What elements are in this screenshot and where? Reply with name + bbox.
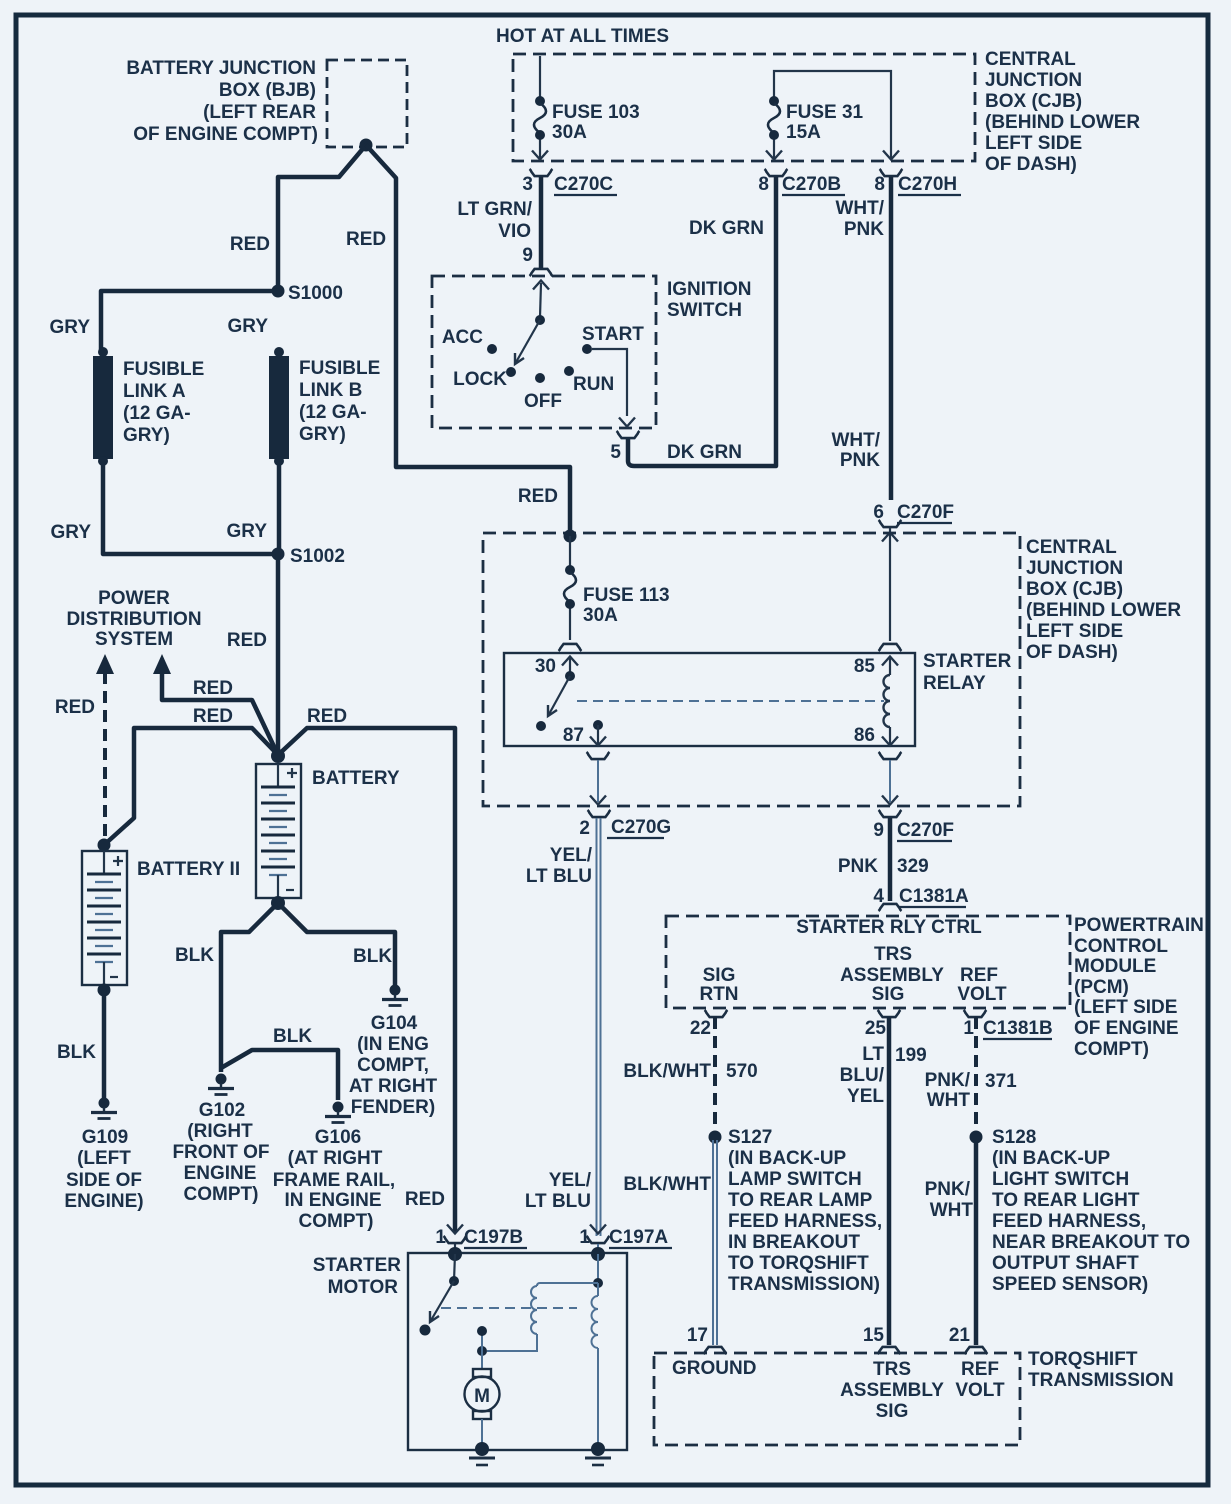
svg-text:(BEHIND LOWER: (BEHIND LOWER — [985, 112, 1140, 133]
svg-text:570: 570 — [726, 1061, 758, 1082]
svg-text:199: 199 — [895, 1045, 927, 1066]
svg-text:BOX (BJB): BOX (BJB) — [219, 80, 316, 101]
svg-text:POWERTRAIN: POWERTRAIN — [1074, 915, 1204, 936]
svg-text:17: 17 — [687, 1325, 708, 1346]
svg-text:SIG: SIG — [703, 965, 736, 986]
svg-text:LT BLU: LT BLU — [526, 866, 592, 887]
svg-text:8: 8 — [874, 174, 885, 195]
svg-text:GROUND: GROUND — [672, 1358, 756, 1379]
svg-text:AT RIGHT: AT RIGHT — [349, 1076, 438, 1097]
svg-text:S127: S127 — [728, 1127, 772, 1148]
svg-text:(IN BACK-UP: (IN BACK-UP — [728, 1148, 847, 1169]
svg-text:TO REAR LAMP: TO REAR LAMP — [728, 1190, 873, 1211]
svg-text:BATTERY JUNCTION: BATTERY JUNCTION — [126, 58, 316, 79]
svg-text:C270G: C270G — [611, 817, 671, 838]
svg-text:TRANSMISSION): TRANSMISSION) — [728, 1274, 880, 1295]
svg-text:ENGINE): ENGINE) — [64, 1191, 143, 1212]
svg-text:G106: G106 — [315, 1127, 361, 1148]
svg-text:21: 21 — [949, 1325, 971, 1346]
svg-text:(LEFT REAR: (LEFT REAR — [203, 102, 316, 123]
svg-text:IGNITION: IGNITION — [667, 279, 751, 300]
svg-text:POWER: POWER — [98, 588, 170, 609]
svg-text:STARTER RLY CTRL: STARTER RLY CTRL — [796, 917, 982, 938]
svg-text:YEL/: YEL/ — [549, 1170, 592, 1191]
svg-text:G102: G102 — [199, 1100, 245, 1121]
svg-text:C270F: C270F — [897, 502, 954, 523]
svg-text:OF ENGINE COMPT): OF ENGINE COMPT) — [133, 124, 318, 145]
svg-text:VOLT: VOLT — [955, 1380, 1005, 1401]
svg-text:30A: 30A — [583, 605, 618, 626]
svg-text:SIDE OF: SIDE OF — [66, 1170, 142, 1191]
svg-text:9: 9 — [873, 820, 884, 841]
svg-text:GRY): GRY) — [299, 424, 346, 445]
svg-text:TORQSHIFT: TORQSHIFT — [1028, 1349, 1138, 1370]
svg-text:C197B: C197B — [464, 1227, 523, 1248]
svg-text:FUSE 113: FUSE 113 — [583, 585, 670, 606]
svg-text:FEED HARNESS,: FEED HARNESS, — [992, 1211, 1146, 1232]
svg-text:30A: 30A — [552, 122, 587, 143]
svg-text:22: 22 — [690, 1018, 711, 1039]
svg-text:2: 2 — [579, 818, 590, 839]
svg-text:FUSE 103: FUSE 103 — [552, 102, 640, 123]
svg-text:DK GRN: DK GRN — [689, 218, 764, 239]
svg-text:LT BLU: LT BLU — [525, 1191, 591, 1212]
svg-text:1: 1 — [963, 1018, 974, 1039]
svg-text:OF DASH): OF DASH) — [1026, 642, 1118, 663]
svg-text:(12 GA-: (12 GA- — [299, 402, 367, 423]
svg-text:WHT: WHT — [930, 1200, 974, 1221]
svg-text:SYSTEM: SYSTEM — [95, 629, 173, 650]
svg-text:LIGHT SWITCH: LIGHT SWITCH — [992, 1169, 1129, 1190]
svg-text:(AT RIGHT: (AT RIGHT — [288, 1148, 383, 1169]
svg-text:JUNCTION: JUNCTION — [985, 70, 1082, 91]
svg-text:TRS: TRS — [874, 944, 912, 965]
svg-text:BLK/WHT: BLK/WHT — [623, 1174, 711, 1195]
svg-text:S128: S128 — [992, 1127, 1036, 1148]
svg-text:(RIGHT: (RIGHT — [187, 1121, 253, 1142]
svg-text:WHT/: WHT/ — [835, 198, 884, 219]
svg-text:PNK: PNK — [840, 450, 880, 471]
svg-text:YEL: YEL — [847, 1086, 884, 1107]
svg-text:ASSEMBLY: ASSEMBLY — [840, 1380, 944, 1401]
svg-text:GRY: GRY — [50, 317, 91, 338]
svg-text:(12 GA-: (12 GA- — [123, 403, 191, 424]
svg-text:IN BREAKOUT: IN BREAKOUT — [728, 1232, 860, 1253]
svg-text:STARTER: STARTER — [313, 1255, 402, 1276]
svg-text:TRANSMISSION: TRANSMISSION — [1028, 1370, 1174, 1391]
svg-text:BLK: BLK — [57, 1042, 96, 1063]
svg-text:WHT: WHT — [927, 1090, 971, 1111]
svg-text:VOLT: VOLT — [957, 984, 1007, 1005]
svg-text:OF DASH): OF DASH) — [985, 154, 1077, 175]
svg-text:ASSEMBLY: ASSEMBLY — [840, 965, 944, 986]
svg-text:RTN: RTN — [699, 984, 738, 1005]
svg-text:(PCM): (PCM) — [1074, 977, 1129, 998]
svg-text:BLK: BLK — [353, 946, 392, 967]
svg-text:GRY): GRY) — [123, 425, 170, 446]
svg-text:PNK: PNK — [844, 219, 884, 240]
svg-text:SWITCH: SWITCH — [667, 300, 742, 321]
svg-text:START: START — [582, 324, 644, 345]
svg-text:C197A: C197A — [609, 1227, 668, 1248]
svg-text:RED: RED — [346, 229, 386, 250]
svg-text:15A: 15A — [786, 122, 821, 143]
svg-text:(IN ENG: (IN ENG — [357, 1034, 429, 1055]
svg-text:COMPT): COMPT) — [1074, 1039, 1149, 1060]
svg-text:85: 85 — [854, 656, 876, 677]
svg-text:LINK A: LINK A — [123, 381, 186, 402]
svg-text:NEAR BREAKOUT TO: NEAR BREAKOUT TO — [992, 1232, 1190, 1253]
svg-text:OF ENGINE: OF ENGINE — [1074, 1018, 1179, 1039]
svg-text:ACC: ACC — [442, 327, 483, 348]
svg-text:PNK/: PNK/ — [925, 1179, 971, 1200]
svg-text:RED: RED — [405, 1189, 445, 1210]
svg-text:DISTRIBUTION: DISTRIBUTION — [66, 609, 201, 630]
svg-text:S1002: S1002 — [290, 546, 345, 567]
svg-text:SPEED SENSOR): SPEED SENSOR) — [992, 1274, 1148, 1295]
svg-text:(IN BACK-UP: (IN BACK-UP — [992, 1148, 1111, 1169]
svg-text:HOT AT ALL TIMES: HOT AT ALL TIMES — [496, 26, 669, 47]
svg-text:C1381A: C1381A — [899, 886, 969, 907]
svg-text:MODULE: MODULE — [1074, 956, 1156, 977]
svg-text:STARTER: STARTER — [923, 651, 1012, 672]
svg-text:COMPT): COMPT) — [184, 1184, 259, 1205]
svg-text:GRY: GRY — [228, 316, 269, 337]
svg-text:FEED HARNESS,: FEED HARNESS, — [728, 1211, 882, 1232]
svg-text:RED: RED — [193, 706, 233, 727]
svg-text:9: 9 — [522, 245, 533, 266]
svg-text:C270B: C270B — [782, 174, 841, 195]
svg-text:C270F: C270F — [897, 820, 954, 841]
svg-text:RED: RED — [193, 678, 233, 699]
svg-text:RED: RED — [518, 486, 558, 507]
svg-text:RELAY: RELAY — [923, 673, 986, 694]
svg-text:FENDER): FENDER) — [351, 1097, 435, 1118]
svg-text:GRY: GRY — [227, 521, 268, 542]
svg-text:IN ENGINE: IN ENGINE — [284, 1190, 381, 1211]
svg-text:BOX (CJB): BOX (CJB) — [985, 91, 1082, 112]
svg-text:BLK/WHT: BLK/WHT — [623, 1061, 711, 1082]
svg-text:REF: REF — [961, 1359, 999, 1380]
svg-text:87: 87 — [563, 725, 584, 746]
svg-text:371: 371 — [985, 1071, 1017, 1092]
svg-text:LEFT SIDE: LEFT SIDE — [1026, 621, 1123, 642]
svg-text:(BEHIND LOWER: (BEHIND LOWER — [1026, 600, 1181, 621]
svg-text:LT GRN/: LT GRN/ — [457, 199, 532, 220]
svg-text:LAMP SWITCH: LAMP SWITCH — [728, 1169, 862, 1190]
svg-text:C270C: C270C — [554, 174, 613, 195]
svg-text:FUSIBLE: FUSIBLE — [123, 359, 204, 380]
svg-text:5: 5 — [610, 442, 621, 463]
svg-text:15: 15 — [863, 1325, 885, 1346]
svg-text:(LEFT SIDE: (LEFT SIDE — [1074, 997, 1177, 1018]
svg-text:REF: REF — [960, 965, 998, 986]
svg-text:SIG: SIG — [872, 984, 905, 1005]
svg-text:FUSE 31: FUSE 31 — [786, 102, 864, 123]
svg-text:LOCK: LOCK — [453, 369, 507, 390]
svg-text:S1000: S1000 — [288, 283, 343, 304]
svg-text:RED: RED — [227, 630, 267, 651]
svg-text:BATTERY II: BATTERY II — [137, 859, 240, 880]
svg-text:BATTERY: BATTERY — [312, 768, 400, 789]
svg-text:30: 30 — [535, 656, 556, 677]
svg-text:G109: G109 — [82, 1127, 128, 1148]
svg-text:RUN: RUN — [573, 374, 614, 395]
svg-text:86: 86 — [854, 725, 875, 746]
svg-text:MOTOR: MOTOR — [328, 1277, 399, 1298]
svg-text:JUNCTION: JUNCTION — [1026, 558, 1123, 579]
svg-text:ENGINE: ENGINE — [184, 1163, 257, 1184]
svg-text:GRY: GRY — [51, 522, 92, 543]
svg-text:PNK/: PNK/ — [925, 1070, 971, 1091]
svg-text:TRS: TRS — [873, 1359, 911, 1380]
svg-text:CENTRAL: CENTRAL — [1026, 537, 1117, 558]
svg-text:LEFT SIDE: LEFT SIDE — [985, 133, 1082, 154]
svg-text:OFF: OFF — [524, 391, 562, 412]
svg-text:OUTPUT SHAFT: OUTPUT SHAFT — [992, 1253, 1139, 1274]
svg-text:C270H: C270H — [898, 174, 957, 195]
svg-text:COMPT): COMPT) — [299, 1211, 374, 1232]
svg-text:BLK: BLK — [273, 1026, 312, 1047]
svg-text:BLU/: BLU/ — [840, 1065, 885, 1086]
svg-text:8: 8 — [758, 174, 769, 195]
svg-text:TO TORQSHIFT: TO TORQSHIFT — [728, 1253, 869, 1274]
svg-text:FRAME RAIL,: FRAME RAIL, — [273, 1170, 395, 1191]
svg-text:LT: LT — [862, 1044, 884, 1065]
svg-text:TO REAR LIGHT: TO REAR LIGHT — [992, 1190, 1140, 1211]
svg-text:(LEFT: (LEFT — [77, 1148, 131, 1169]
svg-text:BLK: BLK — [175, 945, 214, 966]
svg-text:DK GRN: DK GRN — [667, 442, 742, 463]
svg-text:PNK: PNK — [838, 856, 878, 877]
svg-text:3: 3 — [522, 174, 533, 195]
svg-text:M: M — [474, 1386, 490, 1407]
svg-text:G104: G104 — [371, 1013, 418, 1034]
svg-text:RED: RED — [307, 706, 347, 727]
svg-text:RED: RED — [55, 697, 95, 718]
svg-text:FUSIBLE: FUSIBLE — [299, 358, 380, 379]
svg-text:CONTROL: CONTROL — [1074, 936, 1168, 957]
svg-text:SIG: SIG — [876, 1401, 909, 1422]
svg-text:WHT/: WHT/ — [831, 430, 880, 451]
svg-text:COMPT,: COMPT, — [357, 1055, 429, 1076]
svg-text:FRONT OF: FRONT OF — [172, 1142, 269, 1163]
svg-text:LINK B: LINK B — [299, 380, 362, 401]
svg-text:YEL/: YEL/ — [550, 845, 593, 866]
svg-text:25: 25 — [865, 1018, 887, 1039]
svg-text:BOX (CJB): BOX (CJB) — [1026, 579, 1123, 600]
svg-text:329: 329 — [897, 856, 929, 877]
svg-text:C1381B: C1381B — [983, 1018, 1053, 1039]
svg-text:VIO: VIO — [498, 221, 531, 242]
svg-text:CENTRAL: CENTRAL — [985, 49, 1076, 70]
svg-text:RED: RED — [230, 234, 270, 255]
